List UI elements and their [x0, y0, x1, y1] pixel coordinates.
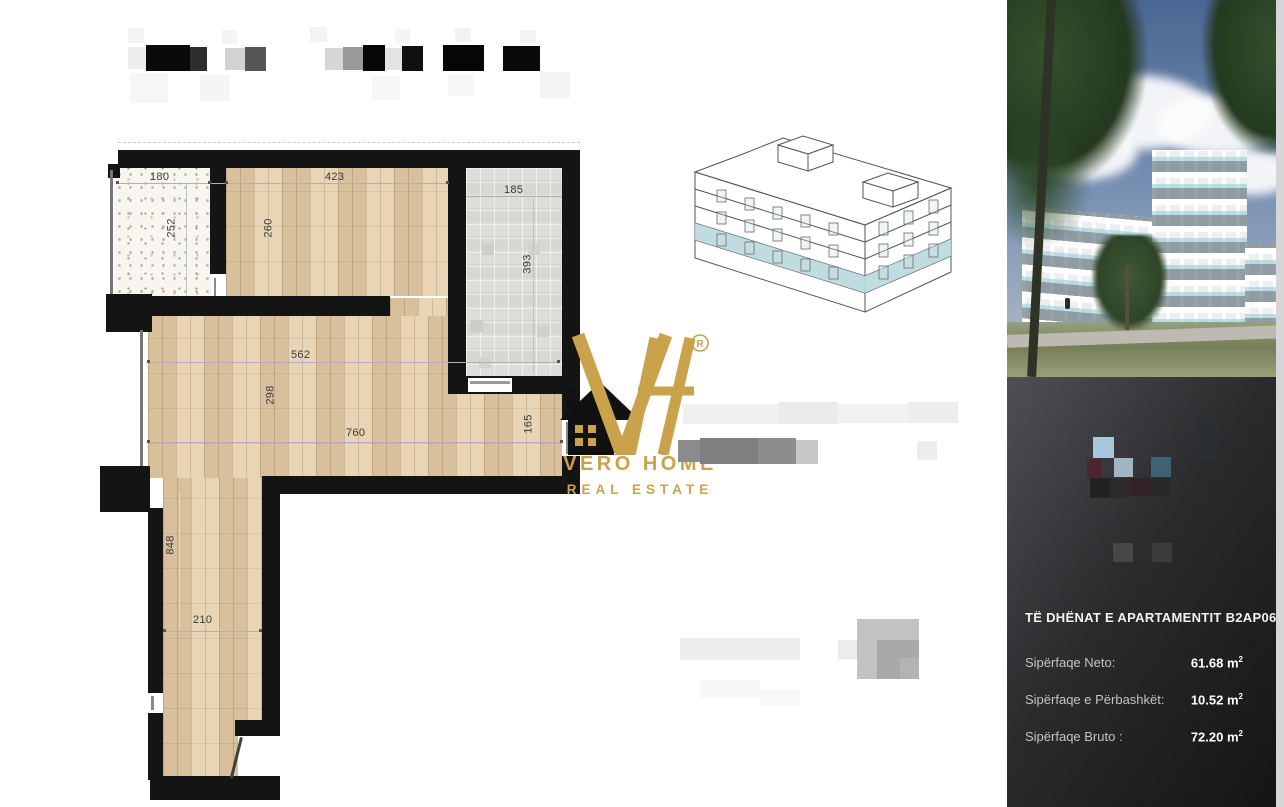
rect [225, 48, 245, 70]
rect [778, 402, 838, 424]
room-bathroom [466, 168, 562, 376]
letter-h-left [630, 338, 655, 455]
rect [128, 28, 144, 43]
dim-bedroom-height: 260 [263, 218, 275, 237]
rect [128, 47, 146, 69]
rect [140, 330, 143, 468]
rect [310, 27, 327, 42]
letter-h-right [663, 338, 690, 455]
label-bruto: Sipërfaqe Bruto : [1025, 729, 1123, 744]
room-bedroom [226, 168, 448, 296]
dim-living-width: 562 [291, 349, 310, 361]
rect [130, 73, 168, 103]
room-living-leg [163, 478, 262, 778]
dim-balcony-width: 180 [150, 171, 169, 183]
logo-wordmark: VERO HOME [552, 453, 728, 476]
info-row-perbashket: Sipërfaqe e Përbashkët: 10.52 m2 [1025, 692, 1243, 707]
screen-edge [1276, 0, 1284, 807]
apartment-info-panel: TË DHËNAT E APARTAMENTIT B2AP06 Sipërfaq… [1007, 377, 1284, 807]
rect [151, 696, 154, 710]
rect [262, 476, 580, 494]
registered-mark: R [696, 339, 704, 350]
dim-bedroom-width: 423 [325, 171, 344, 183]
page: 180 423 185 252 260 393 562 298 760 165 … [0, 0, 1284, 807]
rect [363, 45, 385, 71]
rect [262, 476, 280, 728]
rect [395, 29, 410, 43]
rect [148, 693, 163, 713]
rect [900, 658, 919, 679]
info-row-neto: Sipërfaqe Neto: 61.68 m2 [1025, 655, 1243, 670]
rect [520, 30, 536, 44]
doorway-floor-patch [390, 298, 448, 316]
rect [838, 640, 857, 659]
value-neto: 61.68 m2 [1191, 655, 1243, 670]
vh-monogram-icon: R [552, 325, 728, 455]
rect [838, 404, 908, 423]
rect [150, 776, 280, 800]
vero-home-logo: R VERO HOME REAL ESTATE [552, 325, 728, 515]
rect [190, 47, 207, 71]
isometric-building-sketch [683, 110, 968, 342]
rect [758, 438, 796, 464]
rect [245, 47, 266, 71]
dim-bathroom-width: 185 [504, 184, 523, 196]
rect [680, 638, 800, 660]
rect [877, 640, 919, 679]
rect [857, 619, 919, 679]
info-row-bruto: Sipërfaqe Bruto : 72.20 m2 [1025, 729, 1243, 744]
dim-bathroom-height: 393 [522, 254, 534, 273]
building-photo [1007, 0, 1284, 377]
rect [540, 72, 570, 98]
rect [443, 45, 484, 71]
rect [796, 440, 818, 464]
dim-corridor-height: 165 [523, 414, 535, 433]
rect [402, 46, 423, 71]
rect [372, 76, 400, 100]
tree-left-lower [1007, 120, 1092, 250]
rect [448, 74, 474, 96]
value-bruto: 72.20 m2 [1191, 729, 1243, 744]
rect [210, 168, 226, 274]
rect [100, 466, 150, 512]
value-perbashket: 10.52 m2 [1191, 692, 1243, 707]
rect [700, 680, 760, 698]
rect [214, 278, 216, 296]
rect [200, 75, 230, 101]
apartment-title: TË DHËNAT E APARTAMENTIT B2AP06 [1025, 610, 1277, 625]
rect [148, 508, 163, 780]
rect [908, 402, 958, 423]
rect [385, 48, 402, 70]
small-tree-trunk [1125, 265, 1129, 330]
rect [760, 690, 800, 706]
rect [118, 150, 580, 168]
rect [503, 46, 540, 71]
small-tree [1092, 235, 1167, 330]
rect [106, 294, 152, 332]
dim-living-width-2: 760 [346, 427, 365, 439]
rect [222, 30, 237, 44]
room-balcony [114, 168, 212, 296]
label-perbashket: Sipërfaqe e Përbashkët: [1025, 692, 1164, 707]
roof-outline-dashes [118, 142, 580, 143]
dim-leg-height: 848 [165, 535, 177, 554]
rect [917, 441, 937, 460]
tree-right [1202, 0, 1284, 155]
dim-leg-width: 210 [193, 614, 212, 626]
logo-tagline: REAL ESTATE [552, 482, 728, 497]
rect [110, 170, 113, 306]
rect [343, 47, 363, 70]
dim-living-height: 298 [265, 385, 277, 404]
rect [146, 45, 190, 71]
cyclist [1065, 298, 1070, 309]
dim-balcony-height: 252 [166, 218, 178, 237]
rect [455, 28, 471, 42]
rect [325, 48, 343, 70]
rect [112, 296, 390, 316]
label-neto: Sipërfaqe Neto: [1025, 655, 1115, 670]
